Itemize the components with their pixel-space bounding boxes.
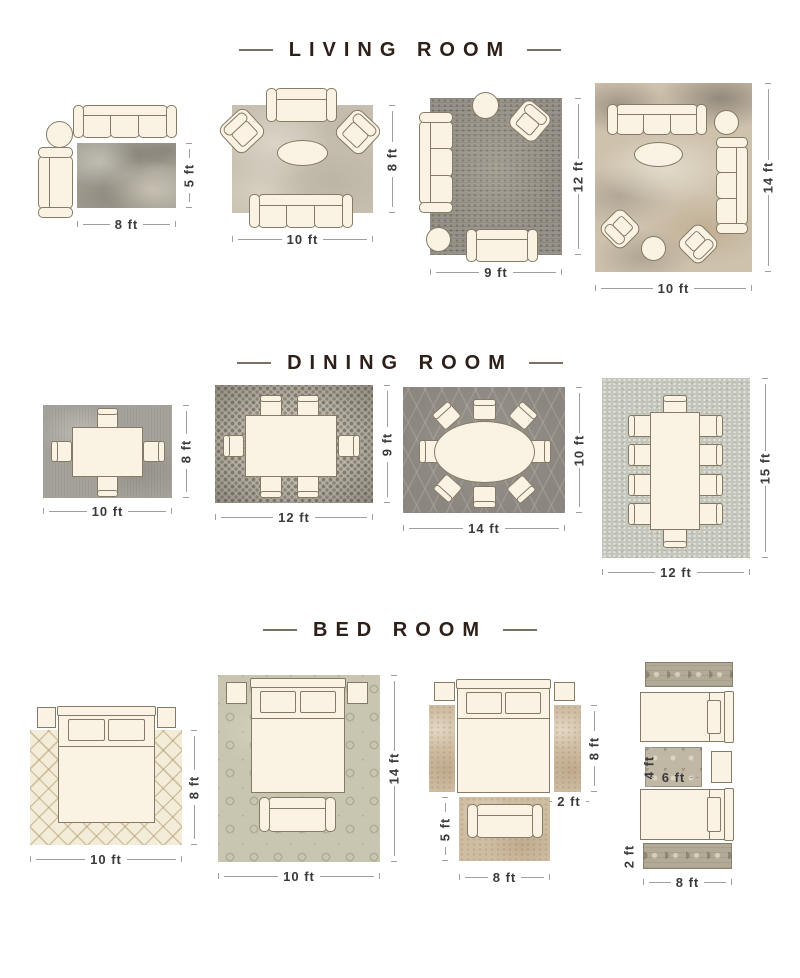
dimension-label: 10 ft	[287, 233, 319, 246]
dining-chair-icon	[297, 475, 319, 496]
dimension-label: 12 ft	[572, 161, 585, 193]
nightstand-icon	[347, 682, 368, 704]
oval-coffee-table-icon	[277, 140, 328, 166]
dimension-label: 8 ft	[188, 776, 201, 800]
dining-chair-icon	[629, 444, 652, 466]
pillow-icon	[707, 700, 721, 734]
nightstand-icon	[434, 682, 455, 701]
nightstand-icon	[226, 682, 247, 704]
dimension-label: 10 ft	[92, 505, 124, 518]
section-title-living-room: LIVING ROOM	[0, 38, 800, 62]
title-dash	[263, 629, 297, 631]
sofa-icon	[607, 104, 707, 135]
dimension-label: 5 ft	[183, 164, 196, 188]
title-dash	[503, 629, 537, 631]
dining-chair-icon	[97, 409, 118, 429]
title-dash	[239, 49, 273, 51]
dimension-label: 12 ft	[278, 511, 310, 524]
round-side-table-icon	[426, 227, 451, 252]
dining-table-icon	[245, 415, 337, 477]
loveseat-icon	[466, 229, 538, 262]
dimension-height: 5 ft	[181, 143, 197, 208]
headboard	[724, 691, 734, 743]
title-dash	[529, 362, 563, 364]
pillow-icon	[68, 719, 105, 741]
section-title-text: DINING ROOM	[287, 352, 513, 375]
dining-chair-icon	[338, 435, 358, 457]
bench-icon	[259, 797, 336, 832]
dimension-height: 5 ft	[437, 797, 453, 861]
dining-table-icon	[650, 412, 700, 530]
dining-chair-icon	[698, 444, 721, 466]
dimension-label: 5 ft	[439, 817, 452, 841]
dimension-height: 12 ft	[570, 98, 586, 255]
dimension-height: 9 ft	[379, 385, 395, 503]
pillow-icon	[260, 691, 296, 713]
dimension-width: 12 ft	[602, 564, 750, 580]
dimension-label: 10 ft	[658, 282, 690, 295]
bed-icon	[251, 679, 345, 793]
runner-rug	[554, 705, 581, 792]
dining-chair-icon	[143, 441, 163, 462]
dimension-label: 9 ft	[484, 266, 508, 279]
round-side-table-icon	[46, 121, 73, 148]
section-title-dining-room: DINING ROOM	[0, 351, 800, 375]
title-dash	[527, 49, 561, 51]
dining-chair-icon	[473, 400, 496, 420]
rug-size-guide: LIVING ROOM 8 ft 5 ft 10 ft 8 ft 9 ft 12…	[0, 0, 800, 978]
dining-chair-icon	[629, 415, 652, 437]
dimension-label: 2 ft	[623, 845, 636, 869]
area-rug	[77, 143, 176, 208]
runner-rug	[645, 662, 733, 687]
sofa-icon	[249, 194, 353, 228]
dimension-width: 12 ft	[215, 509, 373, 525]
dining-chair-icon	[698, 503, 721, 525]
dining-chair-icon	[629, 503, 652, 525]
nightstand-icon	[37, 707, 56, 728]
dimension-width: 14 ft	[403, 520, 565, 536]
bed-icon	[457, 680, 550, 793]
section-title-text: LIVING ROOM	[289, 39, 511, 62]
section-title-text: BED ROOM	[313, 619, 487, 642]
dimension-height: 10 ft	[571, 387, 587, 513]
dimension-label: 10 ft	[90, 853, 122, 866]
sofa-icon	[716, 137, 748, 234]
dimension-label: 6 ft	[662, 771, 686, 784]
dining-chair-icon	[629, 474, 652, 496]
bench-icon	[467, 804, 543, 838]
dimension-label: 10 ft	[573, 434, 586, 466]
dimension-width: 10 ft	[595, 280, 752, 296]
headboard	[456, 679, 551, 689]
dimension-label: 8 ft	[386, 147, 399, 171]
dining-chair-icon	[698, 415, 721, 437]
dimension-width: 8 ft	[77, 216, 176, 232]
headboard	[57, 706, 156, 716]
chaise-icon	[38, 147, 73, 218]
round-side-table-icon	[472, 92, 499, 119]
nightstand-icon	[554, 682, 575, 701]
sofa-icon	[419, 112, 453, 213]
dining-chair-icon	[698, 474, 721, 496]
dimension-label: 12 ft	[660, 566, 692, 579]
dimension-height: 8 ft	[586, 705, 602, 792]
dining-table-icon	[72, 427, 143, 477]
dimension-height: 15 ft	[757, 378, 773, 558]
dimension-height: 8 ft	[178, 405, 194, 498]
headboard	[250, 678, 346, 688]
dimension-height: 8 ft	[186, 730, 202, 845]
dining-chair-icon	[97, 475, 118, 495]
pillow-icon	[300, 691, 336, 713]
dimension-label: 8 ft	[115, 218, 139, 231]
pillow-icon	[707, 797, 721, 831]
dimension-width: 8 ft	[643, 874, 732, 890]
dining-chair-icon	[663, 528, 687, 546]
dimension-label: 14 ft	[762, 162, 775, 194]
headboard	[724, 788, 734, 841]
section-title-bed-room: BED ROOM	[0, 618, 800, 642]
dining-chair-icon	[224, 435, 244, 457]
dimension-height: 14 ft	[760, 83, 776, 272]
dimension-width: 10 ft	[232, 231, 373, 247]
dimension-label: 14 ft	[388, 753, 401, 785]
runner-rug	[429, 705, 455, 792]
dimension-width: 10 ft	[30, 851, 182, 867]
dimension-label: 9 ft	[381, 432, 394, 456]
sofa-icon	[73, 105, 177, 138]
twin-bed-icon	[640, 789, 733, 840]
loveseat-icon	[266, 88, 337, 122]
oval-dining-table-icon	[434, 421, 535, 483]
runner-rug	[643, 843, 732, 869]
dimension-label: 8 ft	[676, 876, 700, 889]
dimension-label: 8 ft	[180, 440, 193, 464]
round-side-table-icon	[714, 110, 739, 135]
dimension-height: 8 ft	[384, 105, 400, 213]
twin-bed-icon	[640, 692, 733, 742]
dining-chair-icon	[260, 396, 282, 417]
dimension-height: 2 ft	[621, 843, 637, 869]
nightstand-icon	[157, 707, 176, 728]
dining-chair-icon	[52, 441, 72, 462]
nightstand-icon	[711, 751, 732, 783]
dining-chair-icon	[297, 396, 319, 417]
oval-coffee-table-icon	[634, 142, 683, 167]
title-dash	[237, 362, 271, 364]
dimension-label: 14 ft	[468, 522, 500, 535]
dining-chair-icon	[260, 475, 282, 496]
dimension-label: 15 ft	[759, 452, 772, 484]
dimension-height: 14 ft	[386, 675, 402, 862]
round-side-table-icon	[641, 236, 666, 261]
dimension-label: 2 ft	[557, 795, 581, 808]
dimension-width: 10 ft	[43, 503, 172, 519]
pillow-icon	[108, 719, 145, 741]
dimension-width: 2 ft	[549, 793, 589, 809]
pillow-icon	[466, 692, 502, 714]
dimension-label: 10 ft	[283, 870, 315, 883]
dimension-label: 8 ft	[493, 871, 517, 884]
bed-icon	[58, 707, 155, 823]
dimension-width: 9 ft	[430, 264, 562, 280]
dimension-label: 8 ft	[588, 737, 601, 761]
dimension-width: 8 ft	[459, 869, 550, 885]
pillow-icon	[505, 692, 541, 714]
dining-chair-icon	[473, 486, 496, 506]
dimension-width: 10 ft	[218, 868, 380, 884]
dimension-width: 6 ft	[645, 769, 702, 785]
